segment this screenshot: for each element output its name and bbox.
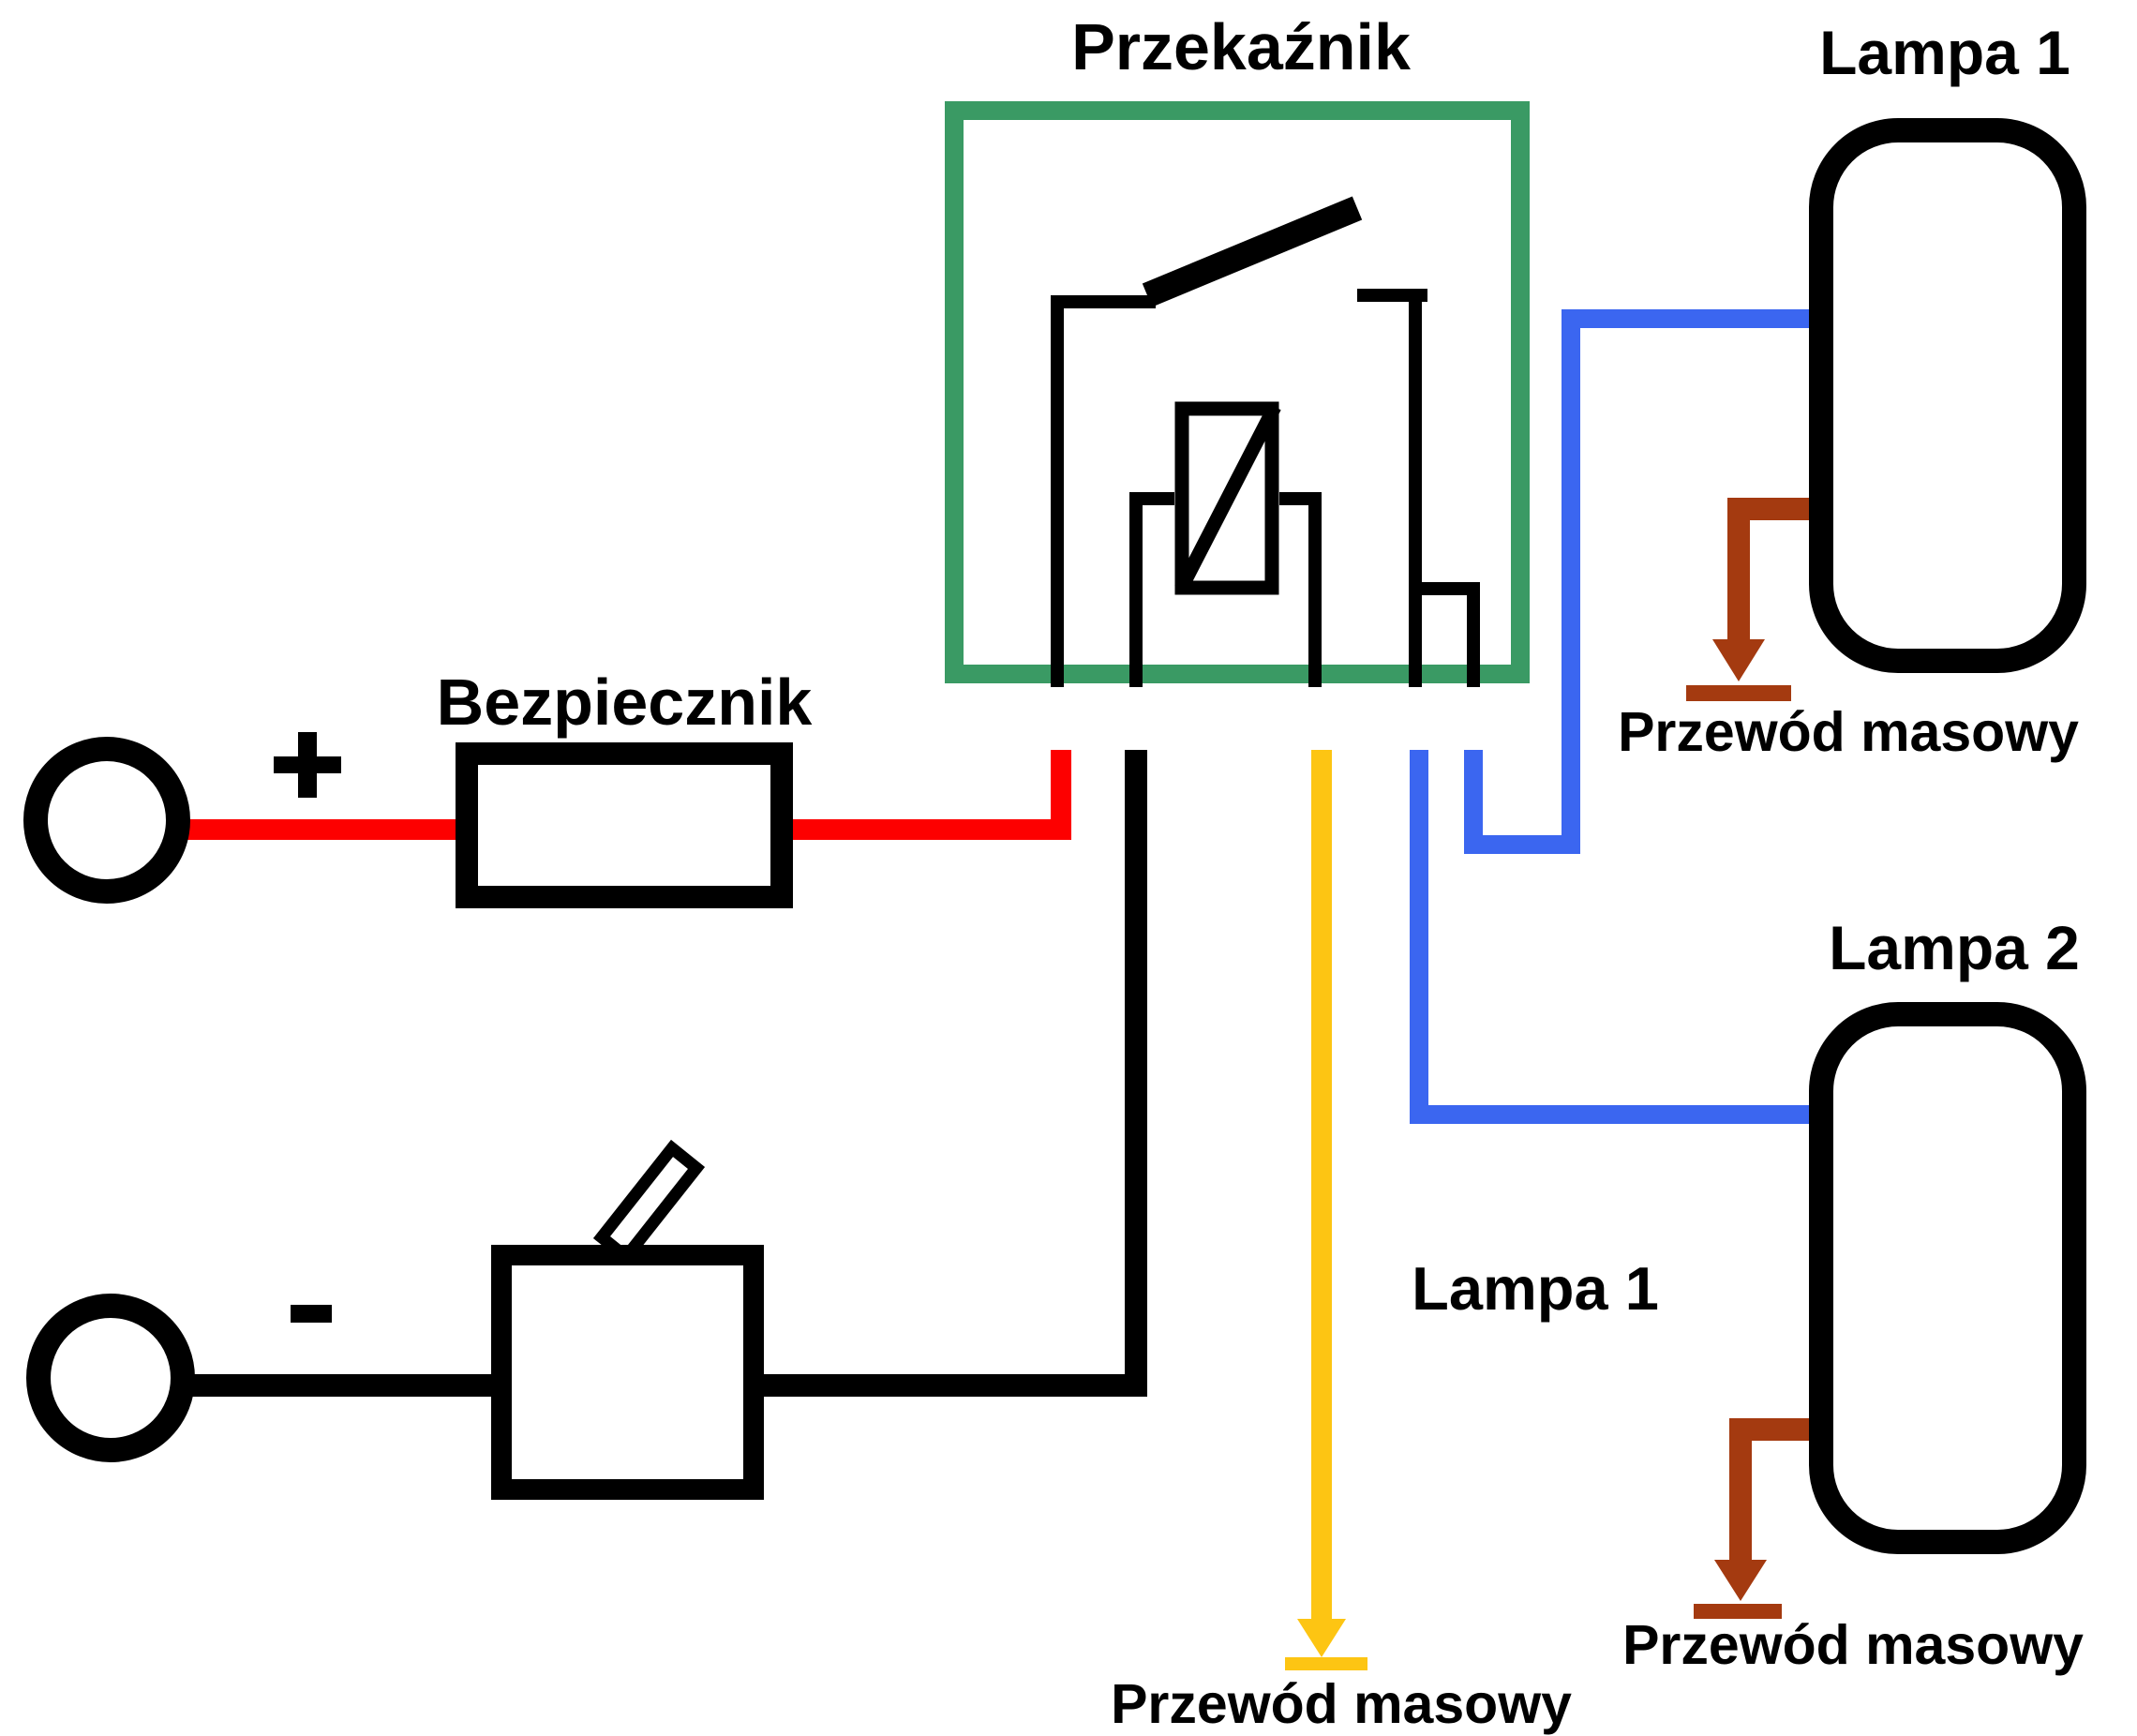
lamp1-shape	[1821, 130, 2074, 661]
red-wire-fuse-to-relay	[793, 750, 1061, 830]
fuse-box	[467, 754, 782, 897]
plus-symbol	[274, 732, 341, 798]
minus-terminal-circle	[38, 1306, 183, 1450]
wiring-diagram: Przekaźnik Lampa 1 Bezpiecznik Przewód m…	[0, 0, 2137, 1736]
relay-pin86-line	[1129, 499, 1174, 687]
brown-arrowhead-lamp1-icon	[1712, 639, 1765, 681]
switch-lever	[602, 1148, 696, 1257]
relay-pin87-line	[1357, 295, 1427, 687]
plus-terminal-circle	[36, 749, 178, 891]
wires	[183, 319, 1823, 1670]
black-wire-switch-to-relay	[764, 750, 1136, 1385]
relay-contact-arm	[1147, 208, 1357, 295]
yellow-arrowhead-icon	[1297, 1619, 1346, 1657]
yellow-ground-bar	[1285, 1657, 1367, 1670]
switch-box	[501, 1255, 754, 1489]
lamp2-ground-label: Przewód masowy	[1622, 1614, 2084, 1676]
relay-pin85-line	[1279, 499, 1322, 687]
brown-ground-bar-lamp1	[1686, 685, 1791, 701]
fuse-label: Bezpiecznik	[437, 666, 813, 739]
brown-arrowhead-lamp2-icon	[1714, 1560, 1767, 1601]
switch-symbol	[501, 1148, 754, 1489]
relay-coil-ground-label: Przewód masowy	[1111, 1673, 1572, 1735]
relay-symbol	[954, 111, 1520, 687]
relay-label: Przekaźnik	[1071, 10, 1411, 83]
lamp1-wire-label: Lampa 1	[1412, 1254, 1659, 1323]
wiring-diagram-canvas: Przekaźnik Lampa 1 Bezpiecznik Przewód m…	[0, 0, 2137, 1736]
minus-symbol	[291, 1305, 332, 1323]
lamp1-ground-label: Przewód masowy	[1618, 701, 2079, 763]
lamp1-label: Lampa 1	[1819, 18, 2070, 87]
lamp2-label: Lampa 2	[1829, 913, 2080, 982]
lamp2-shape	[1821, 1014, 2074, 1542]
